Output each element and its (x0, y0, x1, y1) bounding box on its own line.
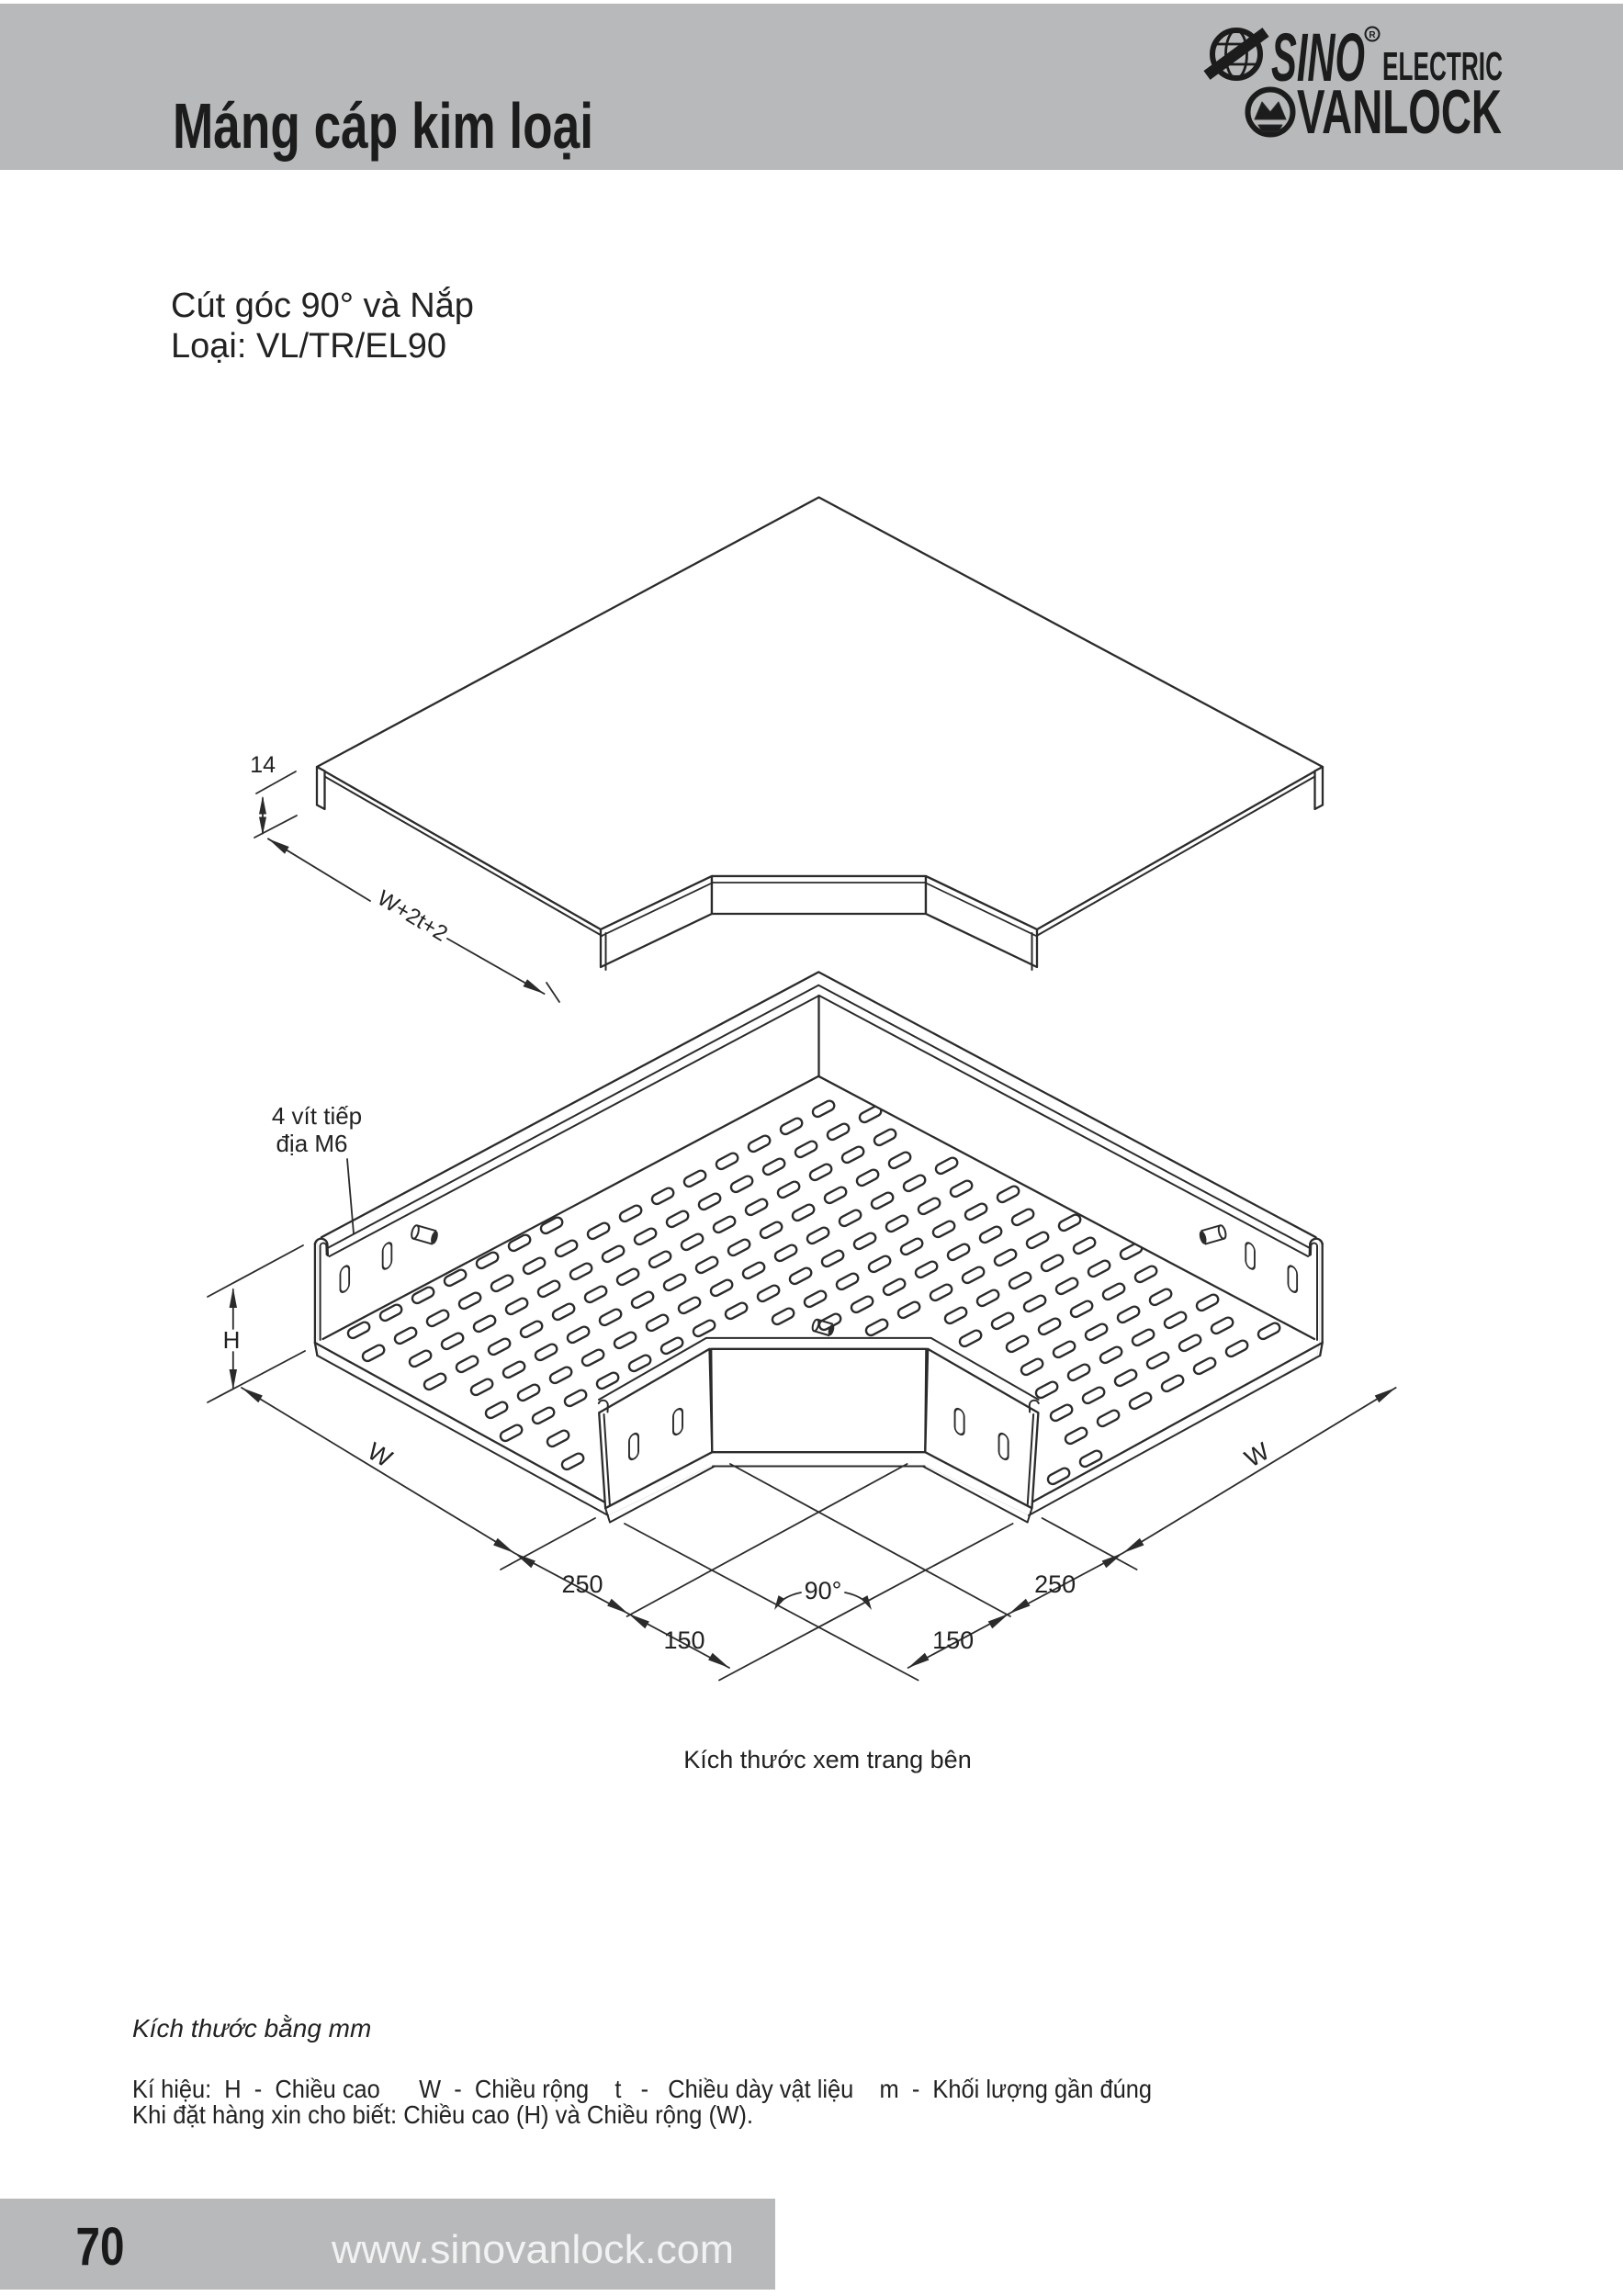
svg-text:Khi đặt hàng xin cho biết: Chi: Khi đặt hàng xin cho biết: Chiều cao (H)… (132, 2100, 753, 2129)
svg-text:R: R (1369, 30, 1376, 40)
svg-text:Kí hiệu: H - Chiều cao: Kí hiệu: H - Chiều cao W - Chiều rộng t … (132, 2075, 1152, 2103)
svg-text:Máng cáp kim loại: Máng cáp kim loại (173, 90, 593, 162)
svg-text:4 vít tiếp: 4 vít tiếp (272, 1102, 362, 1130)
svg-text:150: 150 (663, 1626, 704, 1654)
svg-text:Kích thước xem trang bên: Kích thước xem trang bên (683, 1746, 971, 1773)
svg-text:địa M6: địa M6 (276, 1130, 347, 1157)
svg-text:Cút góc 90° và Nắp: Cút góc 90° và Nắp (171, 286, 474, 325)
svg-text:70: 70 (76, 2217, 125, 2277)
svg-text:90°: 90° (805, 1577, 842, 1604)
svg-text:www.sinovanlock.com: www.sinovanlock.com (331, 2227, 734, 2272)
svg-text:Kích thước bằng mm: Kích thước bằng mm (132, 2014, 371, 2043)
svg-text:VANLOCK: VANLOCK (1297, 77, 1502, 147)
svg-text:150: 150 (932, 1626, 974, 1654)
svg-text:Loại: VL/TR/EL90: Loại: VL/TR/EL90 (171, 327, 446, 366)
svg-text:250: 250 (561, 1570, 603, 1598)
svg-text:H: H (223, 1326, 241, 1354)
svg-text:14: 14 (250, 752, 276, 778)
svg-text:250: 250 (1034, 1570, 1076, 1598)
